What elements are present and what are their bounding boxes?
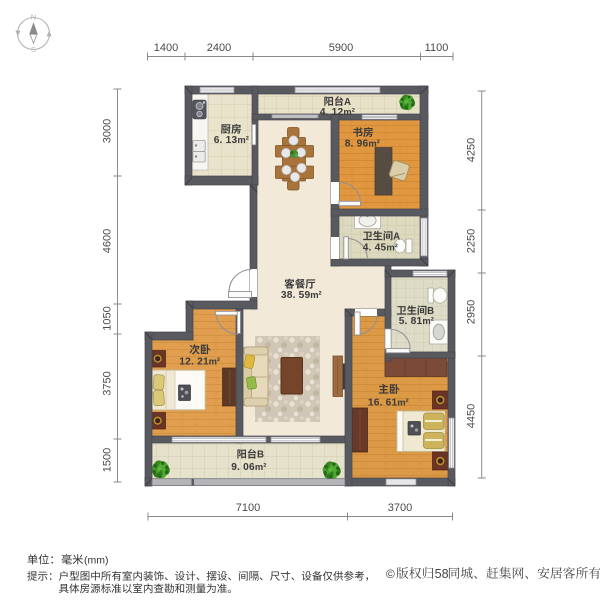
svg-text:3700: 3700 [388, 502, 412, 514]
svg-text:6. 13: 6. 13 [214, 135, 238, 146]
svg-text:5. 81: 5. 81 [399, 316, 423, 327]
svg-text:B: B [257, 450, 264, 461]
svg-text:S: S [31, 45, 36, 54]
svg-text:©: © [386, 567, 395, 581]
svg-text:58: 58 [435, 567, 449, 581]
svg-text:m²: m² [422, 315, 433, 326]
svg-text:4250: 4250 [466, 138, 478, 162]
svg-text:m²: m² [397, 397, 408, 408]
svg-text:4450: 4450 [466, 404, 478, 428]
svg-text:3000: 3000 [102, 119, 114, 143]
svg-text:m²: m² [209, 355, 220, 366]
svg-text:1400: 1400 [154, 42, 178, 54]
svg-text:(mm): (mm) [84, 555, 109, 567]
svg-text:m²: m² [237, 134, 248, 145]
svg-text:9. 06: 9. 06 [231, 462, 255, 473]
svg-text:5900: 5900 [329, 42, 353, 54]
svg-text:m²: m² [343, 106, 354, 117]
svg-text:1100: 1100 [425, 42, 449, 54]
svg-text:4. 45: 4. 45 [363, 243, 387, 254]
svg-text:7100: 7100 [236, 502, 260, 514]
svg-text:N: N [31, 12, 36, 21]
svg-text:38. 59: 38. 59 [281, 290, 311, 301]
svg-text:m²: m² [310, 289, 321, 300]
svg-text:2950: 2950 [466, 300, 478, 324]
svg-text:16. 61: 16. 61 [368, 398, 398, 409]
svg-text:12. 21: 12. 21 [179, 356, 209, 367]
svg-text:m²: m² [386, 242, 397, 253]
svg-text:4600: 4600 [102, 229, 114, 253]
svg-text:1050: 1050 [102, 306, 114, 330]
svg-text:4. 12: 4. 12 [320, 107, 344, 118]
svg-text:m²: m² [255, 461, 266, 472]
svg-text:8. 96: 8. 96 [345, 138, 369, 149]
svg-text:3750: 3750 [102, 371, 114, 395]
svg-text:2250: 2250 [466, 229, 478, 253]
svg-text:2400: 2400 [207, 42, 231, 54]
svg-text:1500: 1500 [102, 448, 114, 472]
svg-text:m²: m² [368, 137, 379, 148]
